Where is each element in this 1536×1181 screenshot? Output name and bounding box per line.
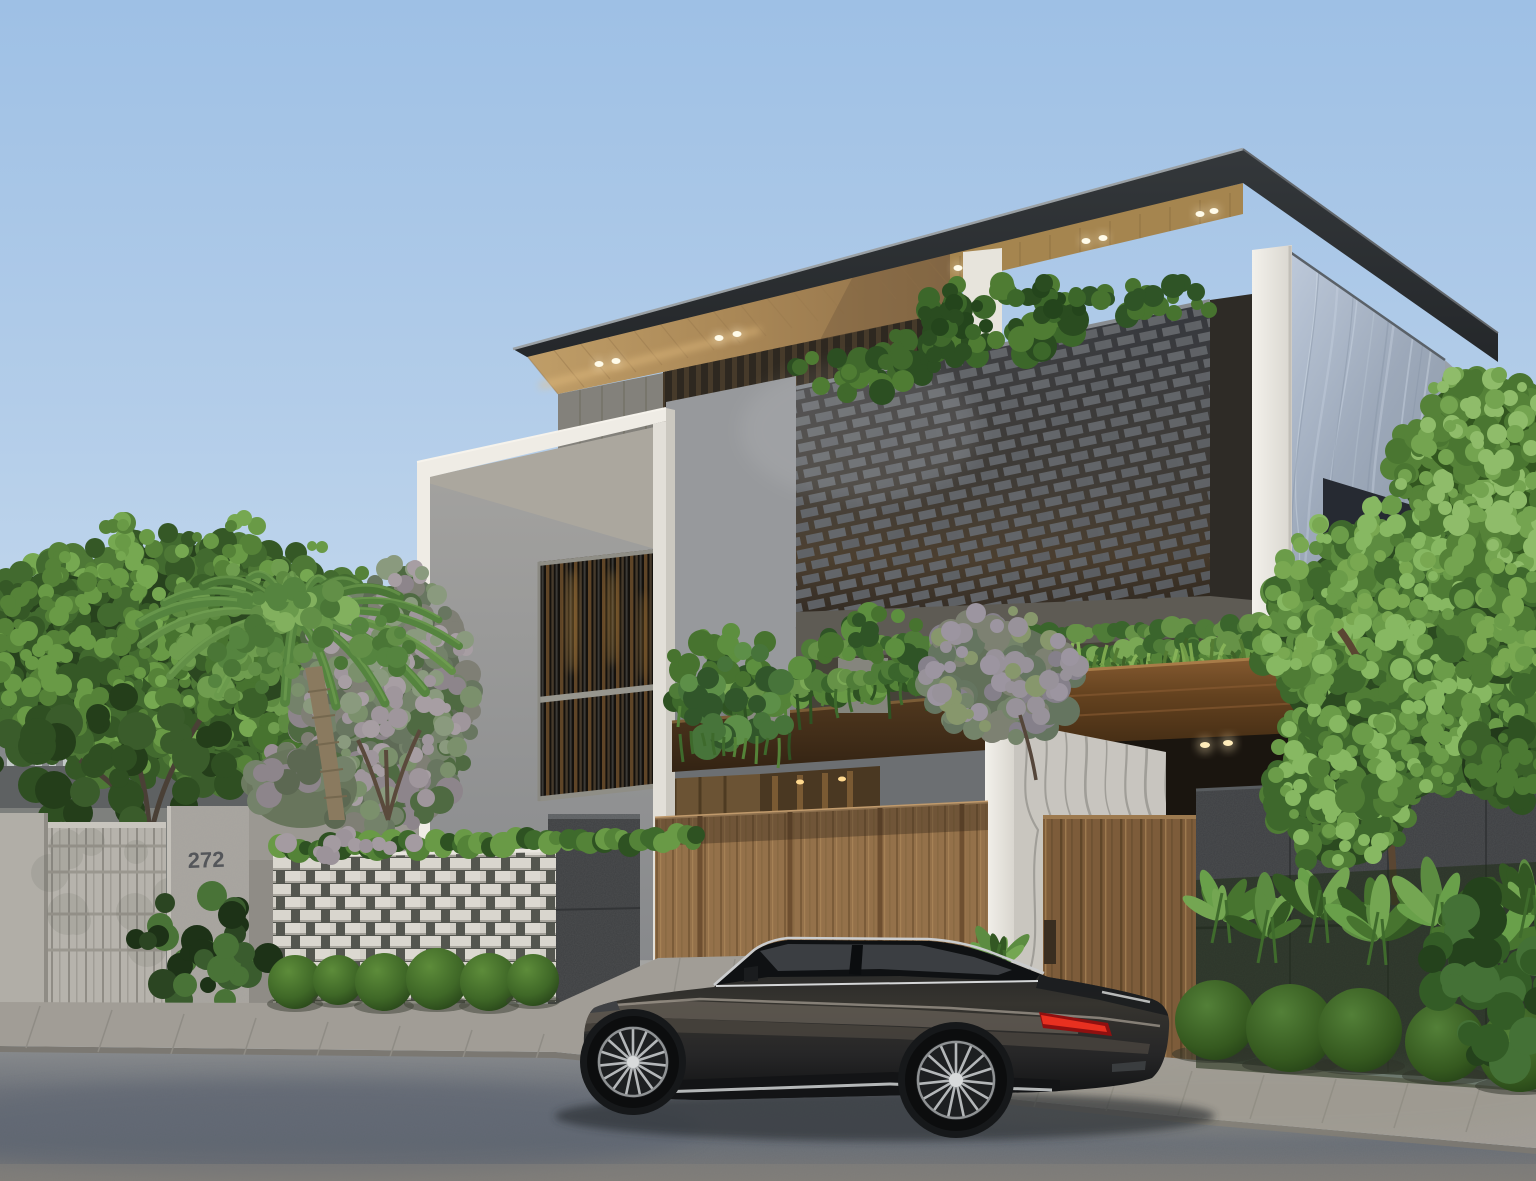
svg-text:272: 272 (187, 847, 225, 873)
